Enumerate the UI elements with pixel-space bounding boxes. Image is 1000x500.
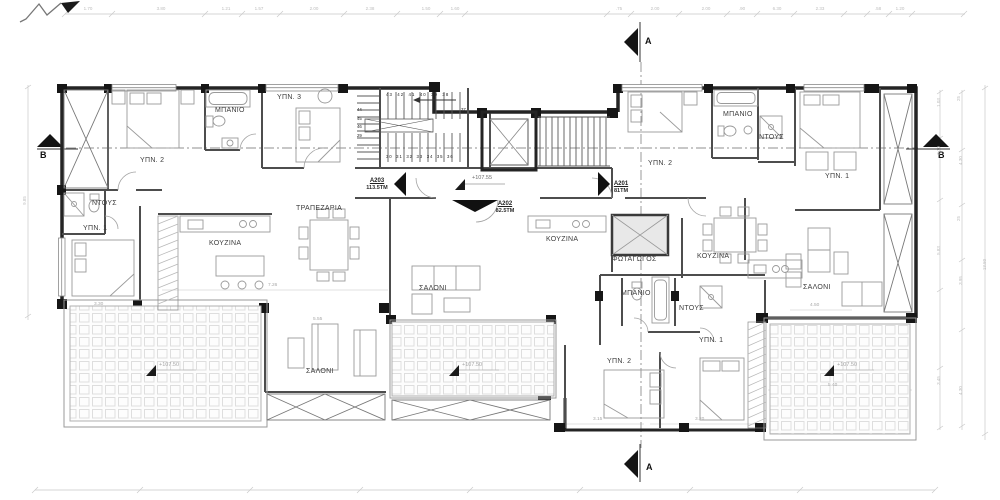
stair-number-45: 45	[357, 116, 362, 121]
dim-top-11: .90	[739, 6, 745, 11]
dim-right-9: 13.50	[982, 259, 987, 270]
stair-number-44: 44	[357, 107, 362, 112]
stair-numbers-bottom: 30 31 32 33 34 35 36	[386, 154, 454, 159]
floorplan-drawing	[0, 0, 1000, 500]
dim-right-3: 3.45	[936, 376, 941, 385]
dim-top-3: 1.57	[255, 6, 264, 11]
dim-plan-living-right: 4.50	[810, 303, 819, 308]
staircase	[357, 92, 460, 162]
dim-top-1: 3.80	[157, 6, 166, 11]
dim-top-15: 1.20	[896, 6, 905, 11]
room-label-left-kitchen: ΚΟΥΖΙΝΑ	[209, 240, 241, 247]
apartment-area: 81TM	[598, 188, 644, 195]
elevation-balcony-left: +107.50	[159, 362, 179, 368]
dim-right-1: 3.10	[936, 146, 941, 155]
dim-plan-bed-mid-a: 3.15	[593, 417, 602, 422]
stair-number-37: 37	[461, 107, 466, 112]
dim-right-6: 25	[956, 216, 961, 221]
room-label-left-bedroom3: ΥΠΝ. 3	[277, 94, 301, 101]
dim-plan-balcony-left: 5.55	[313, 317, 322, 322]
room-label-left-shower: ΝΤΟΥΣ	[92, 200, 117, 207]
elevation-balcony-right: +107.50	[837, 362, 857, 368]
section-marker-a-top: A	[645, 36, 652, 46]
stair-secondary	[538, 117, 610, 166]
north-arrow-icon	[20, 1, 80, 22]
dim-right-4: 25	[956, 96, 961, 101]
room-label-middle-kitchen: ΚΟΥΖΙΝΑ	[546, 236, 578, 243]
dim-left: 9.85	[22, 196, 27, 205]
stair-number-46: 46	[357, 124, 362, 129]
room-label-left-bedroom1: ΥΠΝ. 1	[83, 225, 107, 232]
dim-right-0: 1.03	[936, 98, 941, 107]
elevation-corridor: +107.55	[472, 175, 492, 181]
dim-right-2: 5.83	[936, 246, 941, 255]
floor-plan-canvas: A A B B A203 113.5TM A202 82.5TM A201 81…	[0, 0, 1000, 500]
apartment-id: A202	[482, 201, 528, 208]
section-marker-b-left: B	[40, 150, 47, 160]
light-well	[612, 215, 668, 255]
room-label-middle-shower: ΝΤΟΥΣ	[679, 305, 704, 312]
elevator	[482, 112, 536, 170]
dim-plan-left-wing: 3.30	[94, 302, 103, 307]
room-label-middle-living: ΣΑΛΟΝΙ	[419, 285, 447, 292]
section-marker-a-bottom: A	[646, 462, 653, 472]
room-label-left-bathroom: ΜΠΑΝΙΟ	[215, 107, 245, 114]
dim-top-8: .75	[616, 6, 622, 11]
dim-plan-balcony-right: 5.40	[828, 383, 837, 388]
dim-right-8: 4.30	[958, 386, 963, 395]
dim-top-6: 1.50	[422, 6, 431, 11]
room-label-middle-bedroom2: ΥΠΝ. 2	[607, 358, 631, 365]
room-label-right-kitchen: ΚΟΥΖΙΝΑ	[697, 253, 729, 260]
dim-top-12: 6.30	[773, 6, 782, 11]
dim-top-7: 1.60	[451, 6, 460, 11]
elevation-balcony-middle: +107.50	[462, 362, 482, 368]
room-label-left-dining: ΤΡΑΠΕΖΑΡΙΑ	[296, 205, 342, 212]
dim-top-14: .58	[875, 6, 881, 11]
apartment-area: 113.5TM	[354, 185, 400, 192]
dim-right-7: 3.95	[958, 276, 963, 285]
dim-top-5: 2.38	[366, 6, 375, 11]
room-label-middle-lightwell: ΦΩΤΑΓΩΓΟΣ	[612, 256, 657, 263]
dim-right-5: 4.30	[958, 156, 963, 165]
room-label-right-bedroom2: ΥΠΝ. 2	[648, 160, 672, 167]
apartment-id: A201	[598, 181, 644, 188]
room-label-right-living: ΣΑΛΟΝΙ	[803, 284, 831, 291]
dim-top-9: 2.00	[651, 6, 660, 11]
room-label-left-living: ΣΑΛΟΝΙ	[306, 368, 334, 375]
stair-number-29: 29	[357, 133, 362, 138]
room-label-right-shower: ΝΤΟΥΣ	[759, 134, 784, 141]
apartment-label-a203: A203 113.5TM	[354, 178, 400, 192]
room-label-middle-bedroom1: ΥΠΝ. 1	[699, 337, 723, 344]
room-label-right-bedroom1: ΥΠΝ. 1	[825, 173, 849, 180]
dim-plan-bed-mid-b: 3.20	[695, 417, 704, 422]
stair-numbers-top: 43 42 41 40 39 38	[386, 92, 449, 97]
room-label-left-bedroom2: ΥΠΝ. 2	[140, 157, 164, 164]
dim-top-13: 2.33	[816, 6, 825, 11]
dim-top-4: 2.00	[310, 6, 319, 11]
apartment-id: A203	[354, 178, 400, 185]
room-label-right-bathroom: ΜΠΑΝΙΟ	[723, 111, 753, 118]
dim-top-0: 1.70	[84, 6, 93, 11]
room-label-middle-bathroom: ΜΠΑΝΙΟ	[621, 290, 651, 297]
dim-top-10: 2.00	[702, 6, 711, 11]
apartment-area: 82.5TM	[482, 208, 528, 215]
dim-plan-living: 7.26	[268, 283, 277, 288]
dim-top-2: 1.21	[222, 6, 231, 11]
apartment-label-a201: A201 81TM	[598, 181, 644, 195]
apartment-label-a202: A202 82.5TM	[482, 201, 528, 215]
